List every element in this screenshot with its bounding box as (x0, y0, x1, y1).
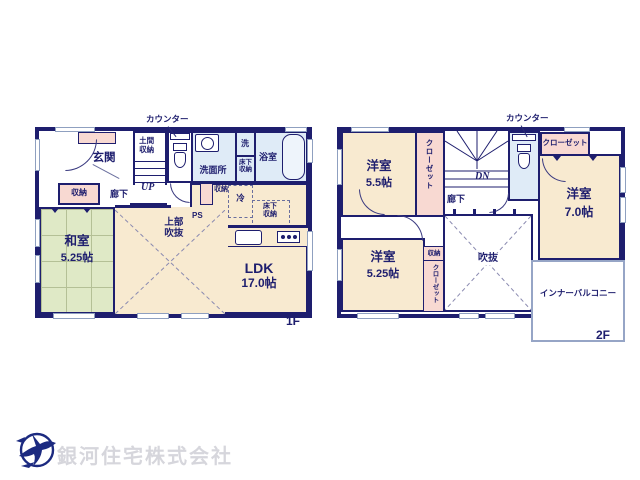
window (620, 197, 626, 223)
bathtub-icon (282, 134, 305, 180)
inner-balcony (531, 260, 625, 342)
door-marker (83, 208, 91, 213)
closet-a-label: クローゼット (424, 139, 435, 211)
window (137, 313, 169, 319)
room-b-name-label: 洋室 (547, 187, 611, 201)
ps-label: PS (192, 211, 203, 220)
door-arc-entrance (65, 139, 97, 171)
kitchen-sink-icon (235, 230, 262, 245)
window (285, 127, 307, 132)
underfloor-storage-b-label: 床下収納 (262, 203, 278, 219)
toilet-bowl-icon (174, 152, 186, 168)
door-arc-toilet-2f (489, 193, 509, 213)
open-ceiling-label: 上部吹抜 (163, 218, 185, 240)
window (337, 249, 342, 281)
hallway-label-2f: 廊下 (447, 194, 465, 204)
closet-c-label: クローゼット (429, 264, 439, 310)
toilet-bowl-icon (518, 153, 530, 169)
window (357, 313, 399, 319)
fridge-label: 冷 (228, 194, 253, 204)
floor-label-1f: 1F (286, 315, 300, 329)
bathroom-label: 浴室 (253, 152, 283, 162)
hallway-label-1f: 廊下 (110, 189, 128, 199)
room-a-size-label: 5.5帖 (349, 177, 409, 190)
window (620, 167, 626, 193)
window (35, 255, 40, 283)
ldk-small-storage (200, 183, 213, 205)
washitsu-name-label: 和室 (47, 234, 107, 248)
door-arc-ldk (170, 183, 190, 203)
railing-tick (453, 209, 456, 215)
railing-tick (513, 209, 516, 215)
window (485, 313, 515, 319)
window (564, 127, 590, 132)
room-a-name-label: 洋室 (349, 159, 409, 173)
window (35, 219, 40, 247)
washitsu-size-label: 5.25帖 (47, 252, 107, 265)
hall-storage-label: 収納 (58, 188, 100, 197)
underfloor-storage-a-label: 床下収納 (238, 159, 253, 174)
room-c-size-label: 5.25帖 (353, 268, 413, 281)
stove-icon (277, 231, 300, 243)
room-c-name-label: 洋室 (353, 250, 413, 264)
window (351, 127, 389, 132)
toilet-counter (512, 134, 536, 141)
wall (115, 205, 171, 208)
window (53, 313, 95, 319)
company-logo (13, 426, 59, 472)
window (307, 139, 313, 163)
washroom-label: 洗面所 (191, 165, 235, 175)
floorplan-1f: 玄関 土間収納 UP 洗面所 洗 床下収納 浴室 収納 廊下 (35, 127, 312, 318)
window (459, 313, 479, 319)
inner-balcony-label: インナーバルコニー (533, 289, 623, 299)
door-marker (51, 208, 59, 213)
window (307, 231, 313, 271)
window (55, 127, 95, 132)
company-name: 銀河住宅株式会社 (57, 440, 233, 469)
stairs-down (443, 131, 510, 193)
railing-tick (473, 209, 476, 215)
ldk-small-storage-label: 収納 (214, 186, 228, 194)
ldk-size-label: 17.0帖 (221, 277, 297, 291)
counter-callout-2f: カウンター (506, 114, 549, 124)
floor-label-2f: 2F (596, 329, 610, 343)
floorplan-2f: 洋室 5.5帖 クローゼット DN 廊下 (337, 127, 625, 318)
ldk-name-label: LDK (221, 260, 297, 276)
closet-b-label: クローゼット (540, 139, 590, 148)
toilet-tank-icon (173, 143, 187, 151)
laundry-label: 洗 (235, 139, 255, 148)
window (337, 149, 342, 185)
floorplan-page: 玄関 土間収納 UP 洗面所 洗 床下収納 浴室 収納 廊下 (0, 0, 640, 480)
door-arc-room-c (397, 215, 423, 241)
counter-callout-1f: カウンター (146, 115, 189, 125)
window (181, 313, 209, 319)
doma-storage-label: 土間収納 (138, 137, 155, 154)
storage-2f-label: 収納 (423, 250, 445, 257)
room-b-size-label: 7.0帖 (547, 206, 611, 220)
washbasin-bowl (201, 137, 214, 150)
stairs-up-label: UP (141, 182, 154, 194)
void-label: 吹抜 (468, 253, 508, 265)
stairs-down-label: DN (475, 171, 489, 183)
railing-tick (493, 209, 496, 215)
door-marker (589, 156, 597, 161)
genkan-step-line (93, 164, 120, 179)
toilet-tank-icon (517, 144, 531, 152)
window (35, 139, 40, 171)
